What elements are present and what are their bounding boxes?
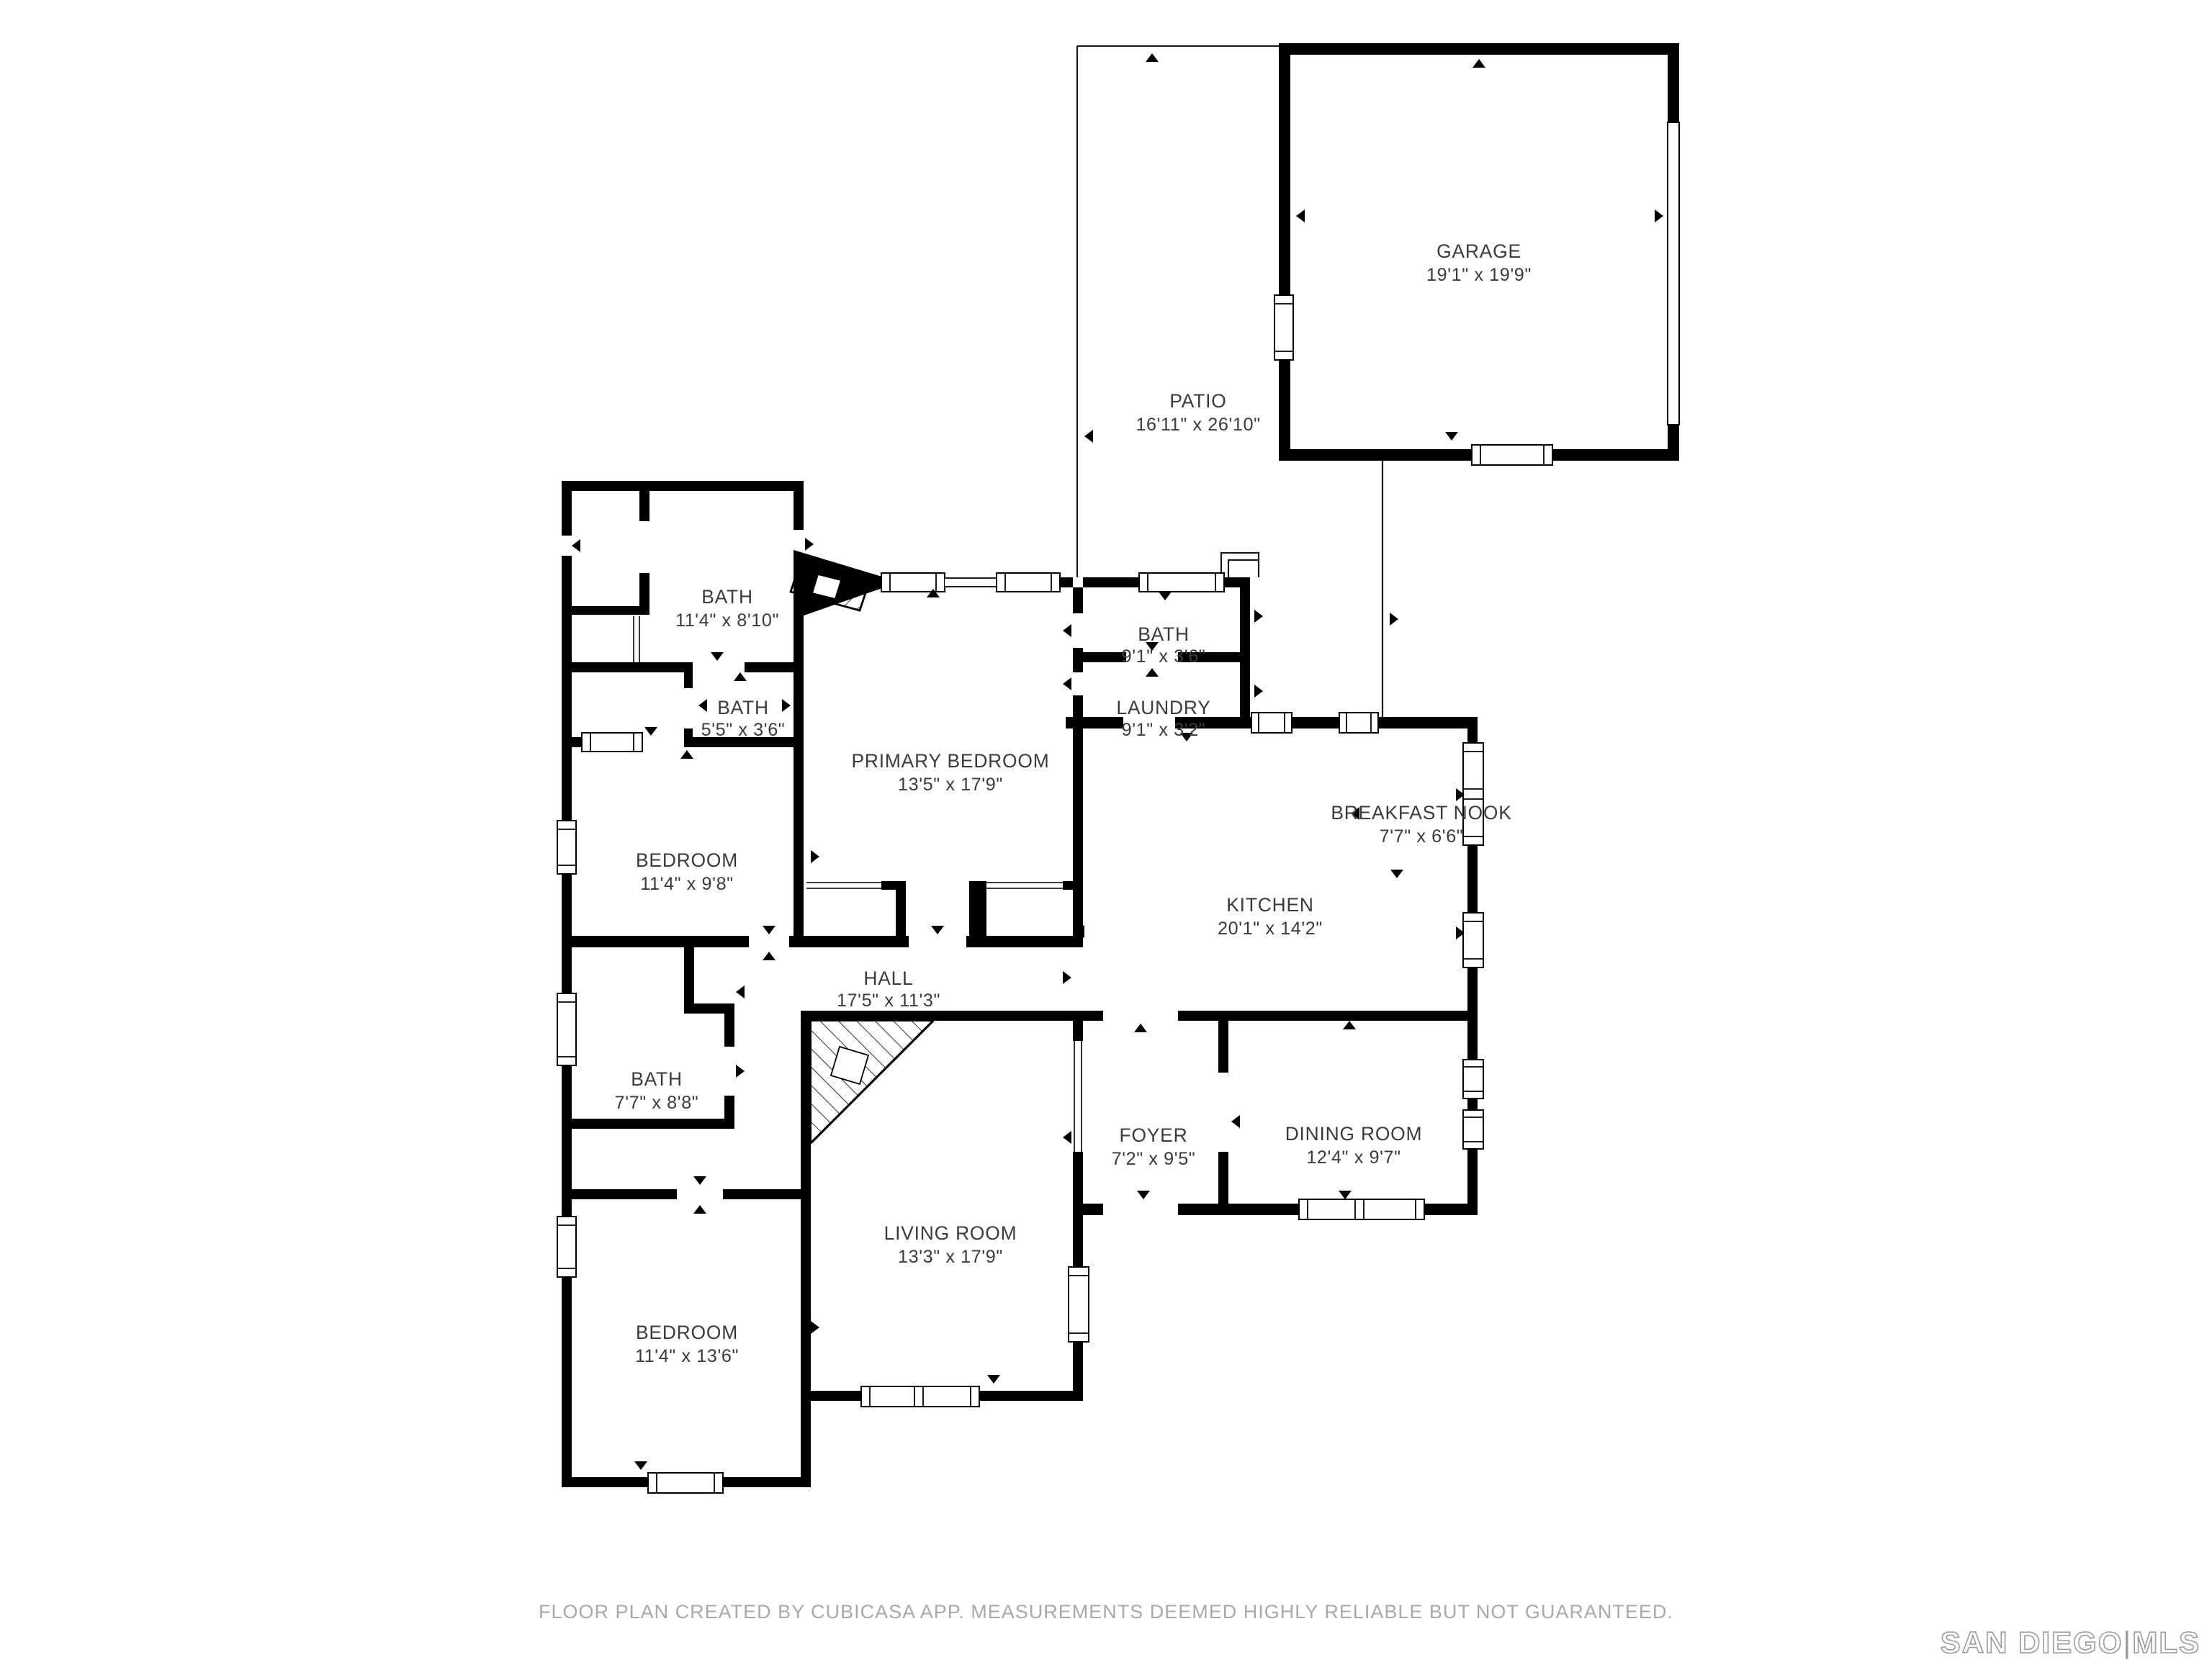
room-label-bedroom-bottom: BEDROOM 11'4" x 13'6" xyxy=(635,1322,739,1366)
svg-text:PATIO: PATIO xyxy=(1169,390,1226,412)
window xyxy=(945,577,997,587)
svg-text:16'11" x 26'10": 16'11" x 26'10" xyxy=(1136,415,1260,435)
mls-logo-separator: | xyxy=(2123,1625,2132,1659)
arrow-left-icon xyxy=(1084,430,1093,443)
svg-text:HALL: HALL xyxy=(863,967,913,989)
svg-text:11'4" x 9'8": 11'4" x 9'8" xyxy=(640,874,733,894)
arrow-right-icon xyxy=(1655,209,1663,222)
room-label-bath-right: BATH 9'1" x 3'6" xyxy=(1122,623,1206,667)
window xyxy=(648,1473,723,1493)
svg-text:BATH: BATH xyxy=(717,697,769,718)
svg-text:11'4" x 13'6": 11'4" x 13'6" xyxy=(635,1346,739,1366)
window xyxy=(881,573,945,592)
arrow-down-icon xyxy=(763,926,775,934)
svg-text:13'5" x 17'9": 13'5" x 17'9" xyxy=(898,775,1003,795)
window xyxy=(557,993,576,1065)
window xyxy=(1472,445,1552,465)
svg-text:LAUNDRY: LAUNDRY xyxy=(1116,697,1210,718)
svg-text:17'5" x 11'3": 17'5" x 11'3" xyxy=(837,991,940,1011)
window xyxy=(1251,713,1292,733)
svg-text:5'5" x 3'6": 5'5" x 3'6" xyxy=(701,720,786,740)
arrow-left-icon xyxy=(698,699,707,712)
arrow-left-icon xyxy=(1296,209,1305,222)
window xyxy=(1339,713,1378,733)
svg-text:DINING ROOM: DINING ROOM xyxy=(1285,1123,1423,1145)
svg-text:BATH: BATH xyxy=(631,1068,683,1090)
svg-text:7'7" x 6'6": 7'7" x 6'6" xyxy=(1380,826,1464,847)
svg-text:9'1" x 3'6": 9'1" x 3'6" xyxy=(1122,646,1206,667)
arrow-up-icon xyxy=(693,1205,706,1214)
disclaimer-text: FLOOR PLAN CREATED BY CUBICASA APP. MEAS… xyxy=(0,1601,2212,1623)
svg-text:BATH: BATH xyxy=(1138,623,1190,645)
windows xyxy=(557,295,1552,1493)
window xyxy=(557,1217,576,1277)
room-label-garage: GARAGE 19'1" x 19'9" xyxy=(1426,240,1532,285)
arrow-up-icon xyxy=(1343,1021,1356,1029)
mls-logo: SAN DIEGO|MLS xyxy=(1941,1625,2200,1660)
open-passage xyxy=(1074,1041,1082,1152)
arrow-right-icon xyxy=(1254,610,1263,623)
floor-plan: GARAGE 19'1" x 19'9" PATIO 16'11" x 26'1… xyxy=(0,0,2212,1659)
mls-logo-left: SAN DIEGO xyxy=(1941,1625,2123,1659)
room-label-bath-lower: BATH 7'7" x 8'8" xyxy=(615,1068,699,1113)
svg-text:13'3" x 17'9": 13'3" x 17'9" xyxy=(898,1247,1003,1267)
arrow-left-icon xyxy=(572,539,580,552)
window xyxy=(997,573,1060,592)
arrow-up-icon xyxy=(1146,668,1159,677)
arrow-down-icon xyxy=(987,1375,1000,1384)
arrow-down-icon xyxy=(1390,870,1403,878)
arrow-up-icon xyxy=(1146,53,1159,62)
arrow-right-icon xyxy=(811,1321,819,1334)
arrow-up-icon xyxy=(680,750,693,759)
arrow-up-icon xyxy=(1134,1024,1147,1032)
arrow-right-icon xyxy=(1254,685,1263,698)
room-label-bath-primary: BATH 11'4" x 8'10" xyxy=(675,586,779,631)
sliding-door xyxy=(986,883,1063,888)
window xyxy=(1299,1199,1424,1219)
patio-outline xyxy=(1077,46,1382,717)
svg-text:19'1" x 19'9": 19'1" x 19'9" xyxy=(1426,265,1532,285)
svg-text:GARAGE: GARAGE xyxy=(1437,240,1521,262)
window xyxy=(1463,1060,1483,1099)
arrow-down-icon xyxy=(931,926,944,934)
arrow-down-icon xyxy=(1137,1191,1150,1199)
arrow-down-icon xyxy=(711,652,724,661)
svg-text:7'7" x 8'8": 7'7" x 8'8" xyxy=(615,1093,699,1113)
arrow-right-icon xyxy=(736,1065,745,1078)
arrow-left-icon xyxy=(1063,1131,1071,1144)
room-label-bath-small: BATH 5'5" x 3'6" xyxy=(701,697,786,740)
arrow-down-icon xyxy=(1339,1191,1352,1199)
svg-text:FOYER: FOYER xyxy=(1120,1124,1188,1146)
room-label-kitchen: KITCHEN 20'1" x 14'2" xyxy=(1218,894,1323,939)
arrow-left-icon xyxy=(736,985,745,998)
floor-plan-canvas: GARAGE 19'1" x 19'9" PATIO 16'11" x 26'1… xyxy=(0,0,2212,1659)
svg-text:7'2" x 9'5": 7'2" x 9'5" xyxy=(1112,1149,1196,1169)
window xyxy=(1139,573,1224,592)
window xyxy=(582,733,642,752)
svg-text:9'1" x 3'2": 9'1" x 3'2" xyxy=(1122,720,1206,740)
arrow-left-icon xyxy=(1231,1115,1240,1128)
room-label-bedroom-mid: BEDROOM 11'4" x 9'8" xyxy=(636,849,738,894)
arrow-right-icon xyxy=(1390,613,1398,626)
window xyxy=(1463,743,1483,845)
window xyxy=(861,1386,979,1407)
svg-text:BEDROOM: BEDROOM xyxy=(636,1322,738,1343)
svg-text:LIVING ROOM: LIVING ROOM xyxy=(884,1222,1017,1244)
mls-logo-right: MLS xyxy=(2132,1625,2200,1659)
svg-text:KITCHEN: KITCHEN xyxy=(1226,894,1313,916)
arrow-down-icon xyxy=(1159,592,1172,600)
arrow-down-icon xyxy=(644,727,657,736)
arrow-up-icon xyxy=(763,952,775,960)
svg-text:12'4" x 9'7": 12'4" x 9'7" xyxy=(1306,1147,1401,1168)
window xyxy=(1463,1110,1483,1149)
svg-text:BEDROOM: BEDROOM xyxy=(636,849,738,871)
room-label-patio: PATIO 16'11" x 26'10" xyxy=(1136,390,1260,435)
svg-text:20'1" x 14'2": 20'1" x 14'2" xyxy=(1218,919,1323,939)
arrow-up-icon xyxy=(1473,59,1485,68)
room-label-hall: HALL 17'5" x 11'3" xyxy=(837,967,940,1011)
room-label-dining: DINING ROOM 12'4" x 9'7" xyxy=(1285,1123,1423,1168)
svg-text:BATH: BATH xyxy=(701,586,753,608)
arrow-left-icon xyxy=(1063,677,1071,690)
svg-text:PRIMARY BEDROOM: PRIMARY BEDROOM xyxy=(852,750,1050,772)
arrow-up-icon xyxy=(734,672,747,681)
fireplace-primary-icon xyxy=(791,550,884,619)
sliding-door xyxy=(634,616,639,662)
arrow-right-icon xyxy=(811,850,819,863)
window xyxy=(557,821,576,874)
window xyxy=(1069,1267,1089,1342)
sliding-door xyxy=(806,883,881,888)
arrow-down-icon xyxy=(1445,432,1458,441)
room-label-breakfast-nook: BREAKFAST NOOK 7'7" x 6'6" xyxy=(1331,802,1511,847)
svg-text:11'4" x 8'10": 11'4" x 8'10" xyxy=(675,610,779,631)
svg-text:BREAKFAST NOOK: BREAKFAST NOOK xyxy=(1331,802,1511,824)
room-label-foyer: FOYER 7'2" x 9'5" xyxy=(1112,1124,1196,1169)
window xyxy=(1463,913,1483,967)
arrow-down-icon xyxy=(634,1461,647,1470)
arrow-left-icon xyxy=(1063,624,1071,637)
arrow-right-icon xyxy=(805,538,814,551)
window xyxy=(1274,295,1293,360)
arrow-right-icon xyxy=(782,699,791,712)
arrow-down-icon xyxy=(693,1176,706,1185)
fireplace-living-icon xyxy=(811,1021,933,1143)
room-label-living: LIVING ROOM 13'3" x 17'9" xyxy=(884,1222,1017,1267)
room-label-primary-bedroom: PRIMARY BEDROOM 13'5" x 17'9" xyxy=(852,750,1050,795)
arrow-right-icon xyxy=(1063,971,1071,984)
